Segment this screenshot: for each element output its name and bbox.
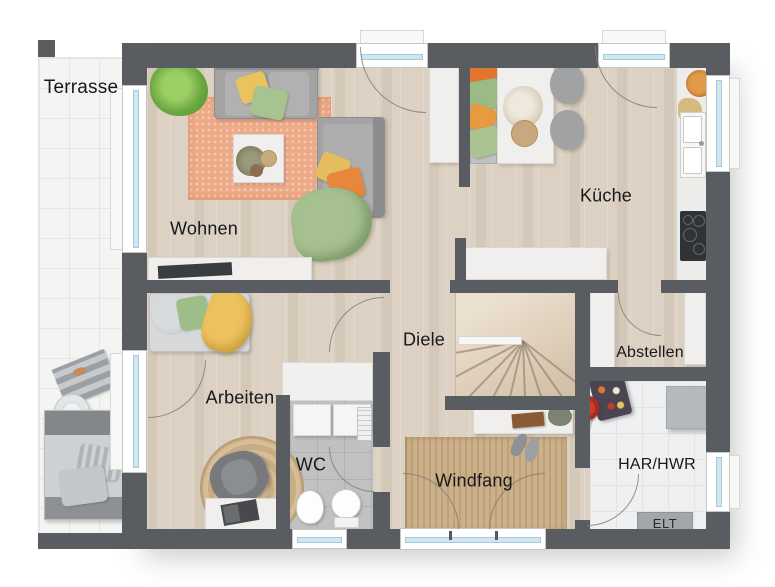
room-label-windfang: Windfang: [435, 471, 513, 492]
faucet-icon: [699, 141, 704, 146]
window-sill: [729, 78, 740, 169]
wall-segment: [373, 492, 390, 531]
wall-stairs-top: [450, 280, 618, 293]
wall-wohnen-diele: [147, 280, 390, 293]
washbasin: [296, 490, 324, 524]
room-label-arbeiten: Arbeiten: [206, 388, 275, 409]
sink-basin: [683, 147, 702, 174]
burner-icon: [683, 215, 693, 225]
window-kueche-right: [706, 75, 730, 172]
room-label-abstellen: Abstellen: [616, 344, 684, 362]
wall-terrace-stub: [38, 40, 55, 57]
office-chair-seat: [218, 456, 261, 499]
window-glass: [133, 355, 139, 468]
potted-plant-icon: [150, 62, 208, 116]
storage-box: [666, 386, 707, 429]
wall-segment: [373, 280, 390, 293]
window-sill: [360, 30, 424, 44]
kitchen-island: [465, 247, 607, 280]
door-glass: [405, 537, 541, 543]
door-handle-icon: [449, 531, 452, 540]
laptop-keyboard: [223, 504, 241, 523]
stair-tread: [522, 340, 568, 396]
room-label-wc: WC: [296, 455, 326, 476]
radiator: [357, 407, 372, 441]
wall-diele-wc: [373, 352, 390, 447]
wall-terrace-bottom: [38, 533, 126, 549]
door-handle-icon: [495, 531, 498, 540]
burner-icon: [683, 228, 697, 242]
window-har: [706, 452, 730, 512]
wc-vanity: [282, 362, 373, 401]
window-wc: [292, 529, 347, 549]
entrance-door: [400, 528, 546, 550]
window-glass: [716, 457, 722, 507]
toilet-tank: [334, 517, 359, 528]
burner-icon: [693, 215, 705, 227]
tall-cabinet: [429, 66, 459, 163]
tray: [260, 150, 277, 167]
dining-chair: [550, 64, 584, 104]
kitchen-sink: [680, 112, 706, 178]
dining-chair: [550, 110, 584, 150]
wall-kueche-abstellen: [661, 280, 730, 293]
window-sill: [602, 30, 666, 44]
storage-cabinet: [684, 292, 706, 365]
window-sill: [729, 455, 740, 509]
room-label-har-hwr: HAR/HWR: [618, 456, 696, 474]
wall-arbeiten-wc: [276, 395, 290, 531]
cooktop: [680, 211, 706, 261]
burner-icon: [693, 243, 705, 255]
wc-cabinet: [293, 404, 331, 436]
wall-diele-windfang: [445, 396, 575, 410]
plate: [511, 120, 538, 147]
bowl: [250, 164, 263, 177]
wall-abstellen-har: [575, 367, 730, 381]
window-glass: [716, 80, 722, 167]
room-label-wohnen: Wohnen: [170, 219, 238, 240]
room-label-kueche: Küche: [580, 186, 632, 207]
book: [511, 412, 544, 429]
room-label-diele: Diele: [403, 330, 445, 351]
toilet: [331, 489, 361, 519]
sink-basin: [683, 116, 702, 143]
wall-stub-island: [455, 238, 466, 282]
room-label-terrasse: Terrasse: [44, 77, 118, 99]
terrace-door-wohnen: [122, 85, 147, 253]
lounger-pillow: [58, 465, 109, 507]
chaise-backrest: [373, 118, 384, 218]
window-glass: [133, 90, 139, 248]
window-glass: [297, 537, 342, 543]
storage-cabinet: [590, 292, 615, 369]
wall-wohnen-kueche: [459, 43, 470, 187]
window-arbeiten: [122, 350, 147, 473]
staircase: [455, 293, 575, 396]
floor-plan: ELT: [0, 0, 775, 587]
stair-handrail: [458, 336, 522, 345]
